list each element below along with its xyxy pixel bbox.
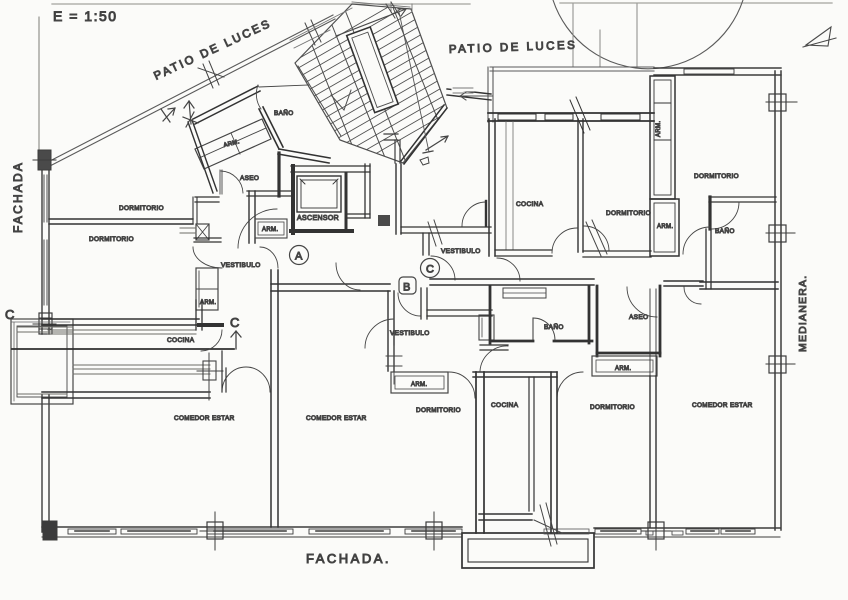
- svg-text:ASEO: ASEO: [629, 314, 648, 321]
- svg-text:ASEO: ASEO: [240, 175, 259, 182]
- svg-text:ASCENSOR: ASCENSOR: [297, 215, 339, 222]
- svg-text:FACHADA: FACHADA: [11, 161, 25, 233]
- svg-text:DORMITORIO: DORMITORIO: [590, 404, 635, 411]
- svg-text:COCINA: COCINA: [167, 337, 195, 344]
- svg-text:MEDIANERA.: MEDIANERA.: [797, 275, 809, 352]
- svg-text:COMEDOR ESTAR: COMEDOR ESTAR: [306, 415, 367, 422]
- svg-text:DORMITORIO: DORMITORIO: [606, 210, 651, 217]
- svg-text:COCINA: COCINA: [491, 402, 519, 409]
- svg-text:DORMITORIO: DORMITORIO: [694, 173, 739, 180]
- svg-text:BAÑO: BAÑO: [544, 322, 564, 331]
- svg-text:DORMITORIO: DORMITORIO: [119, 205, 164, 212]
- svg-text:BAÑO: BAÑO: [715, 226, 735, 235]
- svg-text:COMEDOR ESTAR: COMEDOR ESTAR: [174, 415, 235, 422]
- svg-text:E = 1:50: E = 1:50: [53, 8, 118, 24]
- svg-text:DORMITORIO: DORMITORIO: [89, 236, 134, 243]
- svg-text:DORMITORIO: DORMITORIO: [416, 407, 461, 414]
- svg-text:ARM.: ARM.: [411, 382, 427, 388]
- svg-text:VESTIBULO: VESTIBULO: [221, 262, 261, 269]
- svg-text:COCINA: COCINA: [516, 201, 544, 208]
- svg-text:VESTIBULO: VESTIBULO: [390, 330, 430, 337]
- svg-text:BAÑO: BAÑO: [274, 108, 294, 117]
- svg-text:FACHADA.: FACHADA.: [306, 551, 391, 566]
- svg-text:C: C: [230, 315, 241, 330]
- svg-text:ARM.: ARM.: [615, 366, 631, 372]
- svg-text:C: C: [426, 264, 434, 276]
- svg-text:ARM.: ARM.: [262, 227, 278, 233]
- svg-text:C: C: [5, 307, 16, 322]
- svg-text:VESTIBULO: VESTIBULO: [441, 248, 481, 255]
- svg-text:A: A: [295, 251, 303, 263]
- svg-text:ARM.: ARM.: [657, 224, 673, 230]
- svg-text:ARM.: ARM.: [656, 121, 662, 137]
- svg-text:B: B: [403, 282, 410, 294]
- svg-text:COMEDOR ESTAR: COMEDOR ESTAR: [692, 402, 753, 409]
